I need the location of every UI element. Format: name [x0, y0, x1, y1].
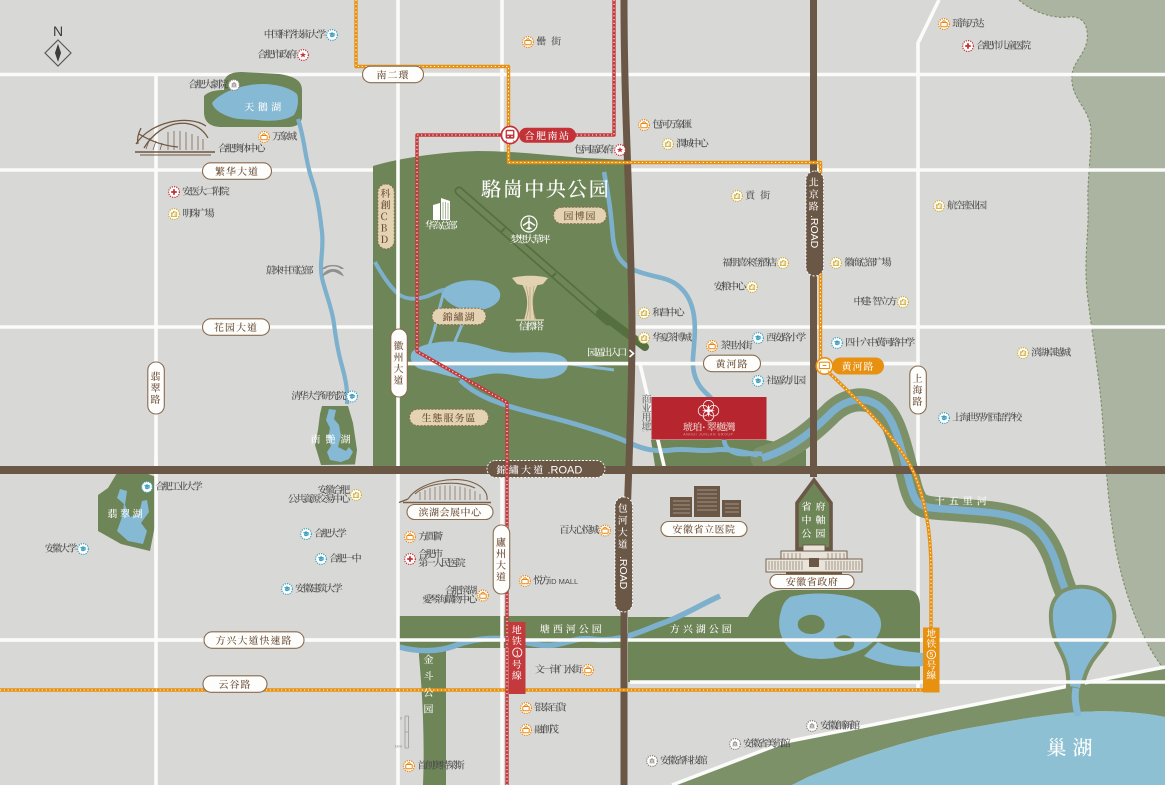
- svg-text:ANHUI JUNLAN GROUP: ANHUI JUNLAN GROUP: [683, 433, 733, 437]
- svg-text:.ROAD: .ROAD: [617, 556, 629, 590]
- svg-text:.ROAD: .ROAD: [548, 464, 583, 476]
- svg-text:N: N: [53, 23, 63, 39]
- svg-text:1: 1: [515, 648, 519, 657]
- svg-text:5: 5: [929, 652, 933, 659]
- svg-text:ID MALL: ID MALL: [549, 577, 578, 586]
- svg-text:.ROAD: .ROAD: [808, 215, 820, 249]
- svg-text:1km: 1km: [394, 743, 402, 748]
- svg-text:(**): (**): [642, 428, 647, 432]
